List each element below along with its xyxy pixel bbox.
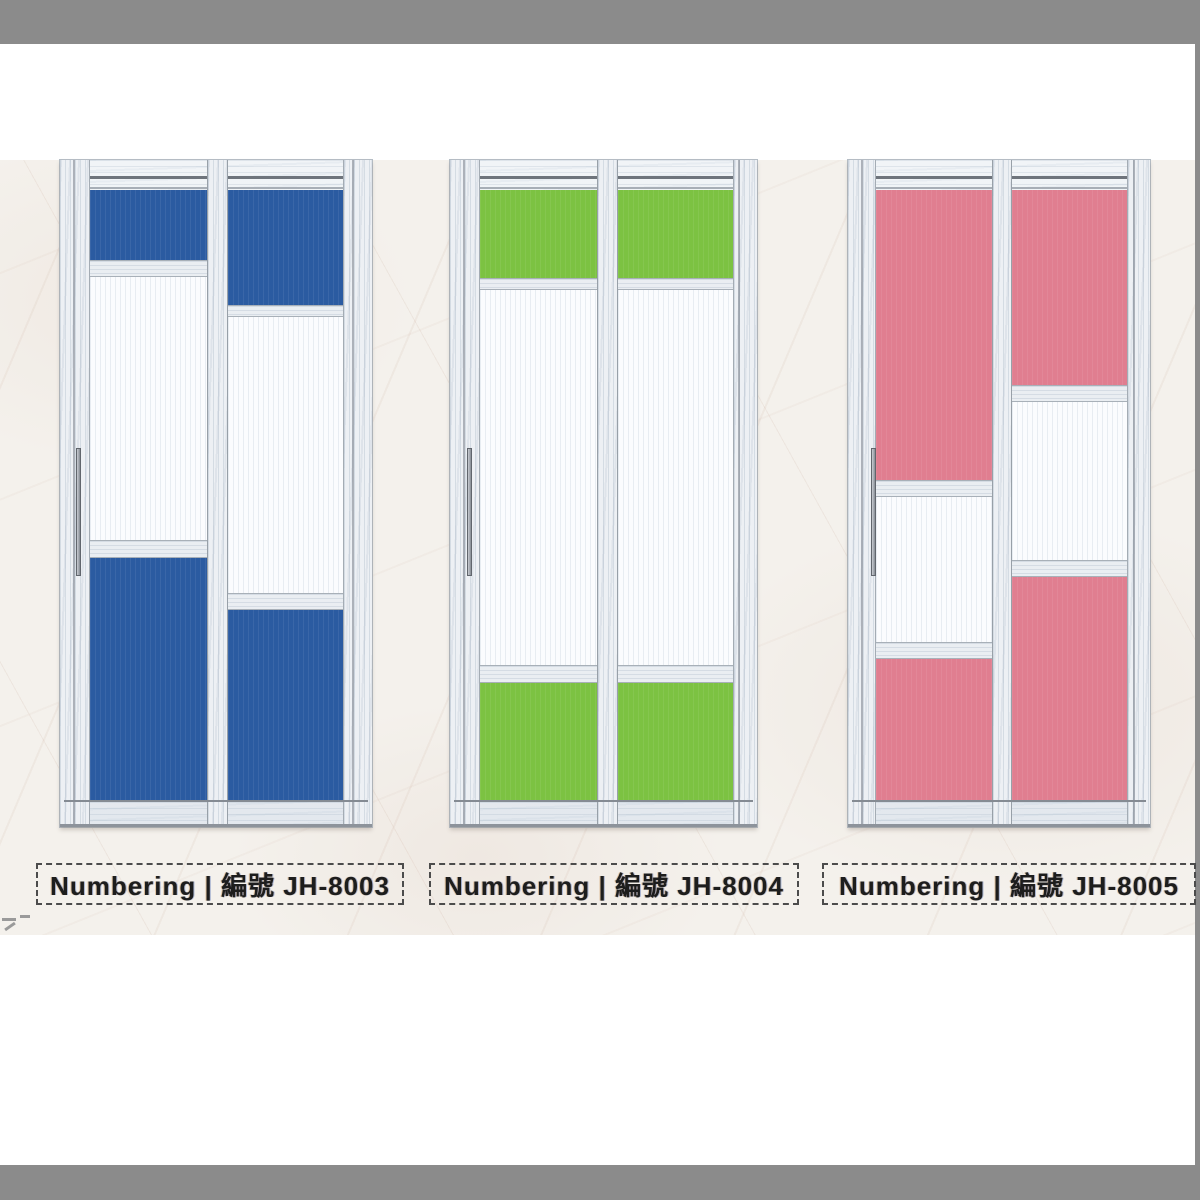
wood-stile-right xyxy=(1127,160,1150,827)
frame-joint-line xyxy=(1133,160,1135,827)
sliding-panel-left xyxy=(876,160,992,827)
sill-edge-line xyxy=(852,800,1146,802)
frosted-glass-panel xyxy=(480,290,597,665)
wood-stile-center xyxy=(207,160,228,827)
colored-glass-panel xyxy=(228,610,343,800)
letterbox-top-bar xyxy=(0,0,1200,44)
wood-rail xyxy=(618,665,733,683)
frame-joint-line xyxy=(738,160,740,827)
door-bottom-edge xyxy=(60,824,372,827)
door-jh-8003 xyxy=(60,160,372,827)
door-bottom-edge xyxy=(450,824,757,827)
sliding-panel-right xyxy=(618,160,733,827)
colored-glass-panel xyxy=(618,190,733,278)
sill-edge-line xyxy=(454,800,753,802)
frosted-glass-panel xyxy=(228,317,343,593)
colored-glass-panel xyxy=(618,683,733,800)
product-label-jh-8003: Numbering | 編號 JH-8003 xyxy=(36,863,404,905)
wood-stile-center xyxy=(597,160,618,827)
wood-rail xyxy=(90,260,207,277)
door-jh-8004 xyxy=(450,160,757,827)
sill-edge-line xyxy=(64,800,368,802)
door-handle xyxy=(871,448,876,576)
wood-stile-center xyxy=(992,160,1012,827)
wood-rail xyxy=(228,305,343,317)
sliding-panel-right xyxy=(1012,160,1127,827)
product-label-text: Numbering | 編號 JH-8003 xyxy=(50,866,390,903)
wood-stile-right xyxy=(733,160,757,827)
colored-glass-panel xyxy=(90,558,207,800)
door-handle xyxy=(467,448,472,576)
wood-stile-left xyxy=(60,160,90,827)
product-label-jh-8005: Numbering | 編號 JH-8005 xyxy=(822,863,1196,905)
letterbox-bottom-bar xyxy=(0,1165,1200,1200)
sliding-panel-right xyxy=(228,160,343,827)
frosted-glass-panel xyxy=(1012,402,1127,560)
wood-rail xyxy=(876,642,992,659)
sliding-panel-left xyxy=(480,160,597,827)
door-jh-8005 xyxy=(848,160,1150,827)
colored-glass-panel xyxy=(90,190,207,260)
product-label-text: Numbering | 編號 JH-8005 xyxy=(839,866,1179,903)
frosted-glass-panel xyxy=(618,290,733,665)
wood-rail xyxy=(1012,385,1127,402)
frosted-glass-panel xyxy=(876,497,992,642)
product-label-jh-8004: Numbering | 編號 JH-8004 xyxy=(429,863,799,905)
wood-rail xyxy=(480,278,597,290)
colored-glass-panel xyxy=(876,190,992,480)
wood-stile-left xyxy=(450,160,480,827)
product-label-text: Numbering | 編號 JH-8004 xyxy=(444,866,784,903)
sliding-panel-left xyxy=(90,160,207,827)
door-bottom-edge xyxy=(848,824,1150,827)
frosted-glass-panel xyxy=(90,277,207,540)
colored-glass-panel xyxy=(1012,190,1127,385)
wood-rail xyxy=(618,278,733,290)
frame-joint-line xyxy=(861,160,863,827)
wood-rail xyxy=(480,665,597,683)
frame-joint-line xyxy=(73,160,75,827)
wood-stile-right xyxy=(343,160,372,827)
colored-glass-panel xyxy=(480,683,597,800)
wood-rail xyxy=(876,480,992,497)
colored-glass-panel xyxy=(1012,577,1127,800)
wood-rail xyxy=(228,593,343,610)
page-mark xyxy=(0,915,38,937)
door-handle xyxy=(76,448,81,576)
letterbox-right-bar xyxy=(1195,44,1200,1165)
wood-rail xyxy=(1012,560,1127,577)
frame-joint-line xyxy=(352,160,354,827)
colored-glass-panel xyxy=(480,190,597,278)
wood-rail xyxy=(90,540,207,558)
colored-glass-panel xyxy=(876,659,992,800)
colored-glass-panel xyxy=(228,190,343,305)
frame-joint-line xyxy=(463,160,465,827)
catalog-page: Numbering | 編號 JH-8003 Numbering | 編號 JH… xyxy=(0,0,1200,1200)
